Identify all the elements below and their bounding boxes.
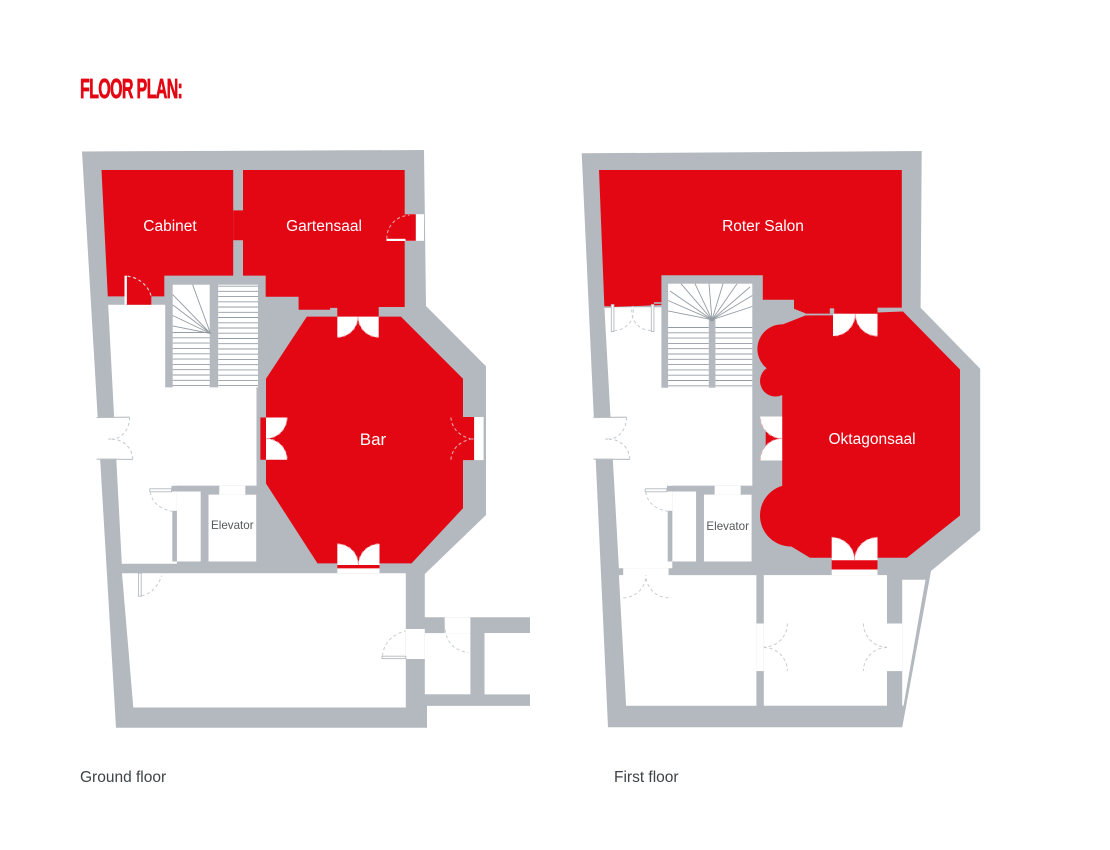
svg-text:Roter Salon: Roter Salon xyxy=(722,218,804,235)
svg-text:Oktagonsaal: Oktagonsaal xyxy=(828,431,915,448)
svg-text:Elevator: Elevator xyxy=(211,519,254,532)
svg-text:Elevator: Elevator xyxy=(706,520,749,533)
svg-text:Bar: Bar xyxy=(360,430,387,449)
svg-text:Cabinet: Cabinet xyxy=(143,218,197,235)
svg-text:Gartensaal: Gartensaal xyxy=(286,218,362,235)
